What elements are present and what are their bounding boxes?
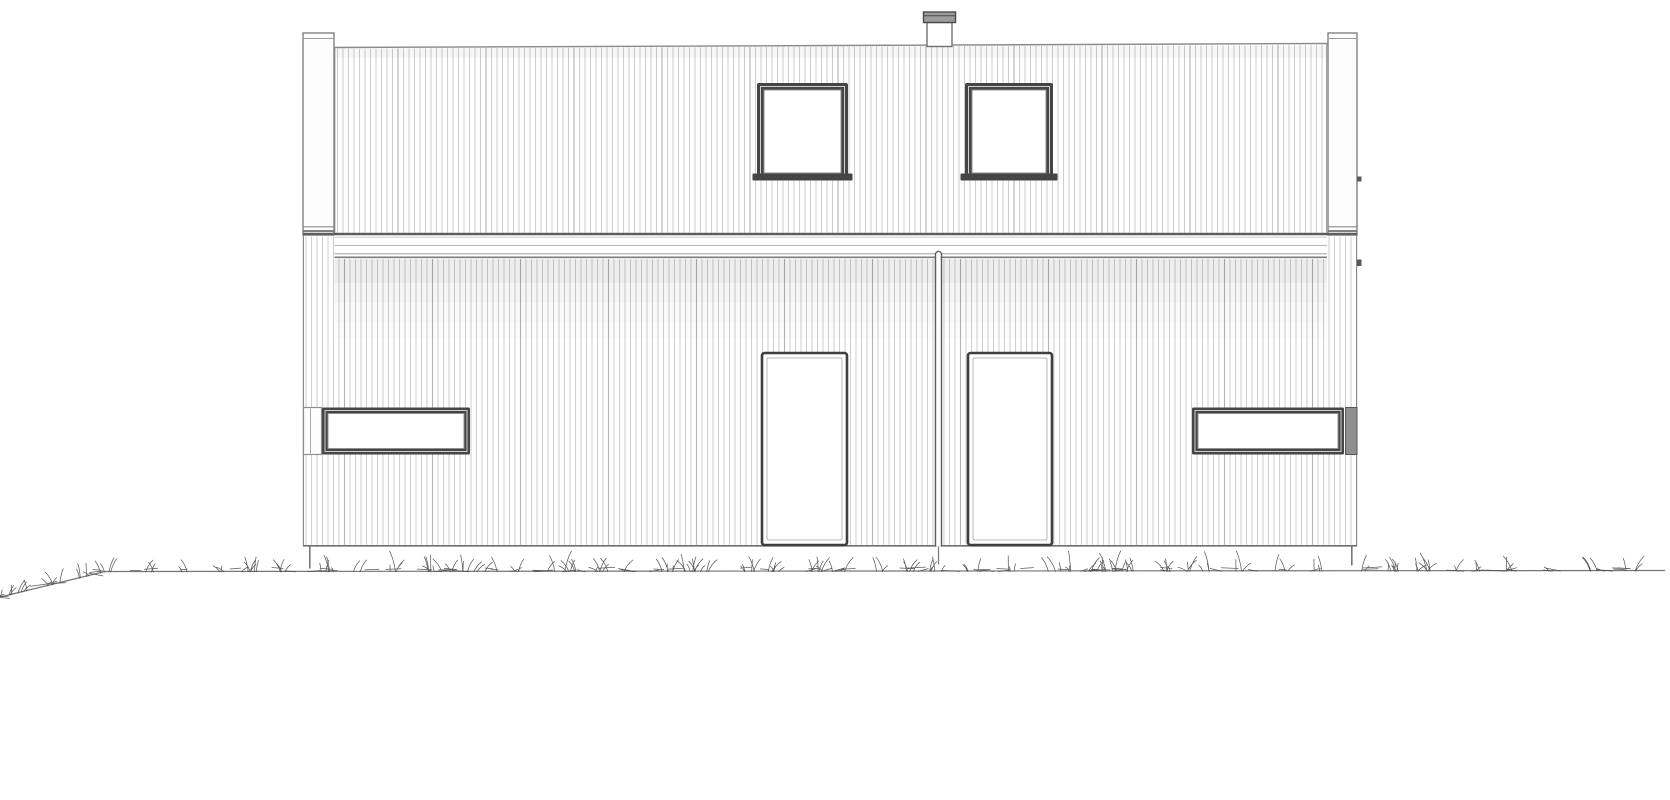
corner-dark-panel [1346, 408, 1358, 455]
corner-post-right [1328, 33, 1357, 235]
upper-window-2 [961, 83, 1058, 181]
window-sill [961, 174, 1058, 181]
ribbon-window-left [304, 408, 471, 455]
ground-line [0, 571, 1665, 598]
corner-post-left [303, 33, 334, 235]
chimney [924, 12, 956, 47]
eaves-band [303, 233, 1357, 259]
upper-window-1 [753, 83, 853, 181]
party-wall-divider [936, 251, 942, 564]
ribbon-window-right [1192, 408, 1357, 455]
door-2 [968, 353, 1052, 545]
gutter-bracket [1357, 177, 1362, 182]
elevation-svg [0, 0, 1670, 800]
door-1 [762, 353, 847, 545]
gutter-brackets [1357, 177, 1362, 267]
window-sill [753, 174, 853, 181]
gutter-bracket [1357, 260, 1362, 267]
drawing-canvas [0, 0, 1670, 800]
grass [0, 551, 1644, 599]
